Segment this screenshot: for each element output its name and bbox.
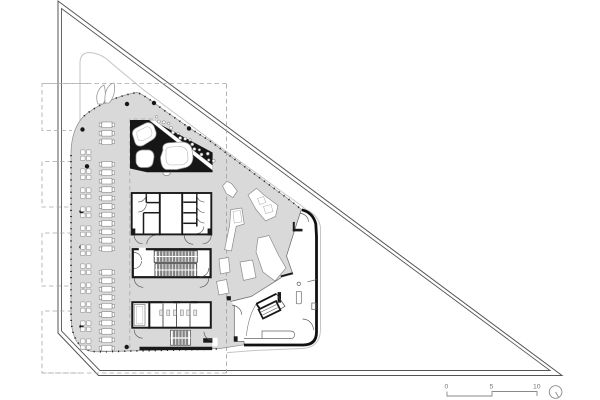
svg-text:5: 5	[490, 384, 494, 391]
svg-text:10: 10	[533, 384, 541, 391]
svg-text:0: 0	[445, 384, 449, 391]
